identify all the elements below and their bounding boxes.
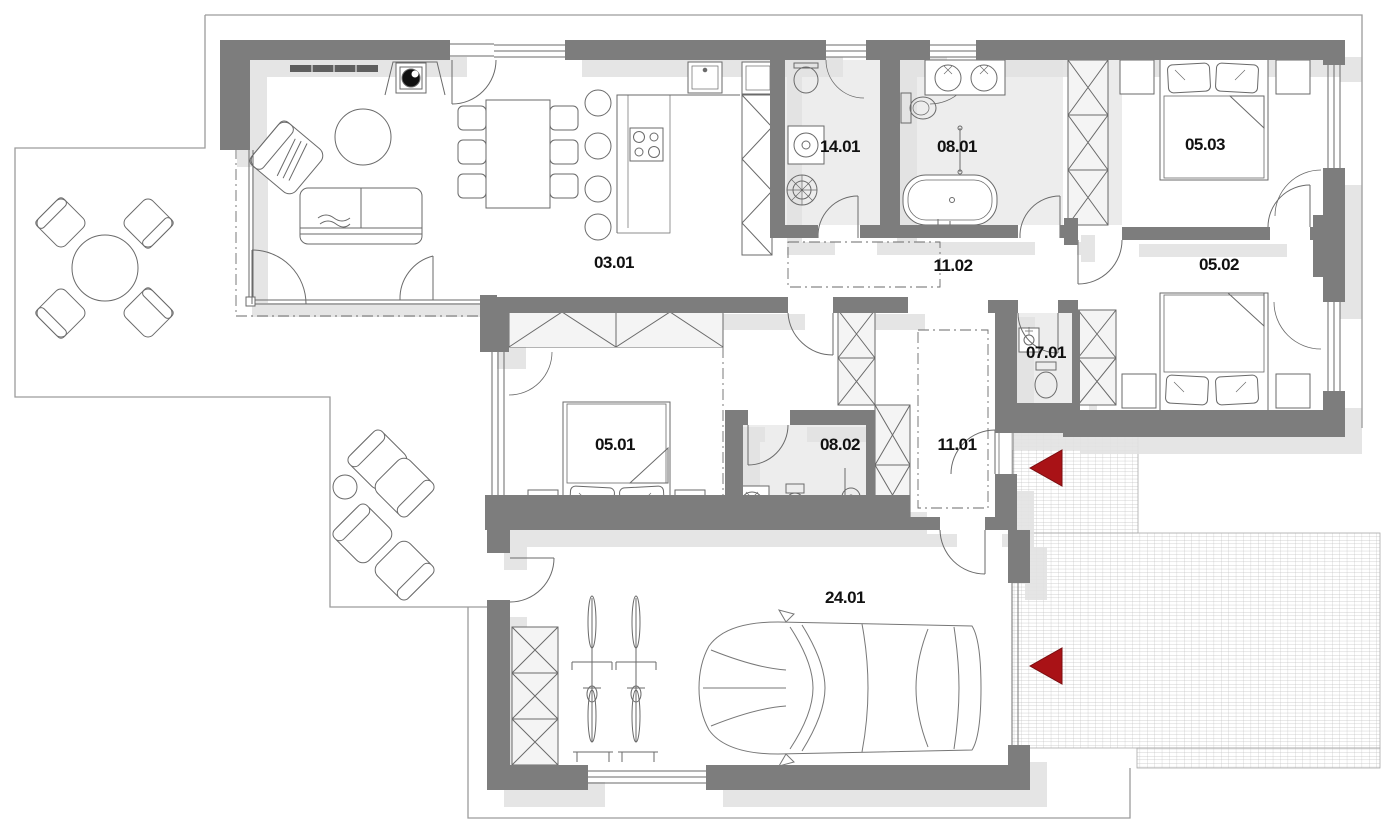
- lounge-chair-icon: [330, 427, 436, 602]
- room-label-hall-upper: 11.02: [933, 256, 972, 275]
- paving-area: [1012, 430, 1380, 768]
- room-label-bedroom1: 05.01: [595, 435, 635, 454]
- double-bed-icon: [1160, 58, 1268, 180]
- bathtub-icon: [903, 175, 997, 225]
- room-label-living: 03.01: [594, 253, 634, 272]
- floor-plan-svg: 03.01 14.01 08.01 05.03 11.02 05.02 07.0…: [0, 0, 1386, 836]
- room-label-bath2: 08.02: [820, 435, 860, 454]
- sofa-icon: [300, 188, 422, 244]
- garden-table-icon: [72, 235, 138, 301]
- fridge-icon: [742, 62, 774, 94]
- room-label-wc: 07.01: [1026, 343, 1066, 362]
- room-label-garage: 24.01: [825, 588, 865, 607]
- bar-stool-icon: [585, 90, 611, 240]
- room-label-entrance: 11.01: [937, 435, 976, 454]
- terrace-door: [252, 250, 433, 304]
- bicycle-icon: [572, 596, 658, 762]
- room-label-utility: 14.01: [820, 137, 860, 156]
- door-arc: [1268, 185, 1310, 227]
- double-bed-icon: [1160, 293, 1268, 412]
- double-sink-icon: [925, 60, 1005, 95]
- room-label-bedroom2: 05.02: [1199, 255, 1239, 274]
- garage-rack-icon: [512, 627, 558, 765]
- cooktop-icon: [630, 128, 663, 161]
- window: [588, 771, 706, 783]
- dining-table-icon: [458, 100, 578, 208]
- pantry-cabinet-icon: [742, 95, 772, 255]
- wardrobe-icon: [1078, 310, 1116, 405]
- washer-icon: [788, 126, 824, 164]
- floor-plan-page: 03.01 14.01 08.01 05.03 11.02 05.02 07.0…: [0, 0, 1386, 836]
- coffee-table-icon: [335, 109, 391, 165]
- wardrobe-icon: [1068, 60, 1108, 225]
- room-label-bath1: 08.01: [937, 137, 977, 156]
- stove-icon: [290, 62, 445, 95]
- window: [492, 352, 552, 495]
- car-icon: [699, 610, 981, 766]
- kitchen-counter: [617, 62, 774, 255]
- entry-canopy-dashed: [918, 330, 988, 508]
- side-table-icon: [333, 475, 357, 499]
- kitchen-sink-icon: [688, 62, 722, 93]
- room-label-bedroom3: 05.03: [1185, 135, 1225, 154]
- window: [494, 45, 565, 57]
- boiler-icon: [787, 175, 817, 205]
